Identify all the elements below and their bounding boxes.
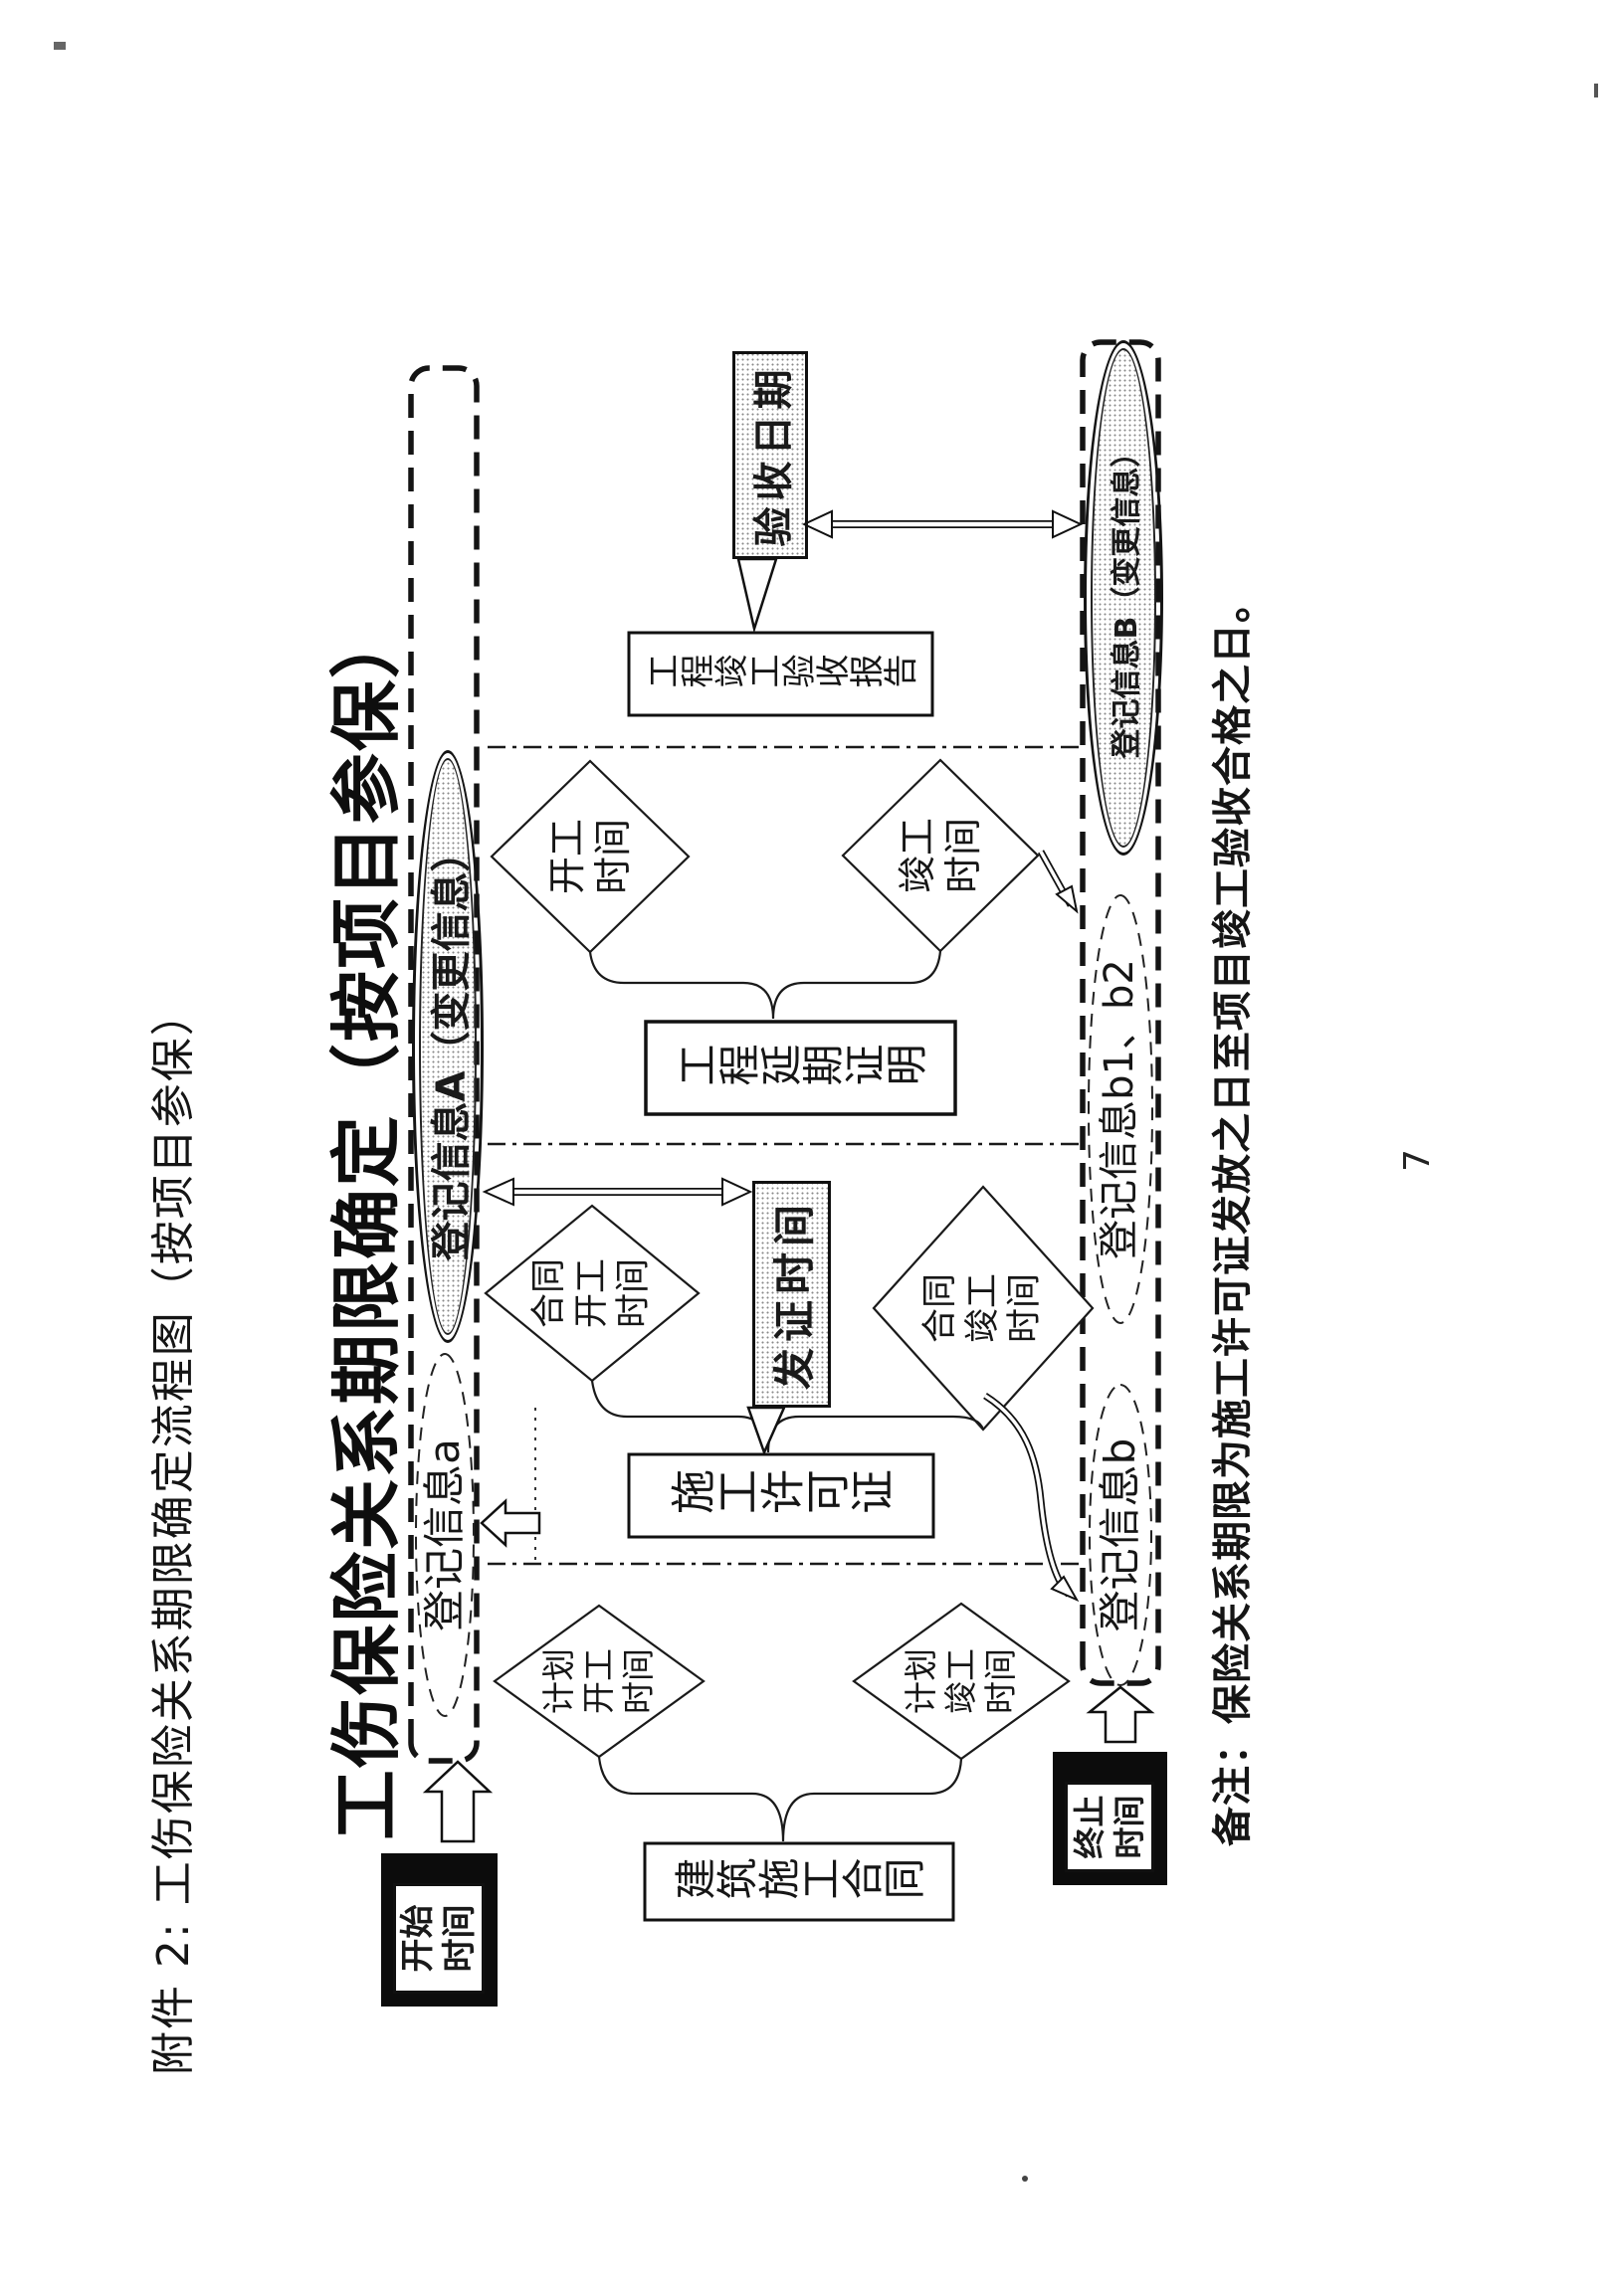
info-b-label: 登记信息b bbox=[1091, 1386, 1150, 1684]
brace-actual bbox=[590, 951, 940, 1019]
info-B-ellipse: 登记信息B（变更信息） bbox=[1084, 340, 1163, 856]
page-number: 7 bbox=[1397, 1149, 1438, 1172]
page-title: 工伤保险关系期限确定（按项目参保） bbox=[310, 606, 412, 1840]
start-time-arrow bbox=[426, 1762, 490, 1841]
issue-date-callout: 发证时间 bbox=[752, 1181, 831, 1408]
contract-completion-label: 合同 竣工 时间 bbox=[874, 1187, 1093, 1430]
planned-completion-label: 计划 竣工 时间 bbox=[854, 1604, 1069, 1759]
scan-artifact bbox=[1022, 2176, 1028, 2182]
delay-certificate-label: 工程延期证明 bbox=[646, 1022, 955, 1114]
issue-date-callout-tail bbox=[748, 1408, 784, 1452]
acceptance-infoB-arrow-head-top bbox=[804, 511, 832, 537]
flowchart-canvas: 附件 2: 工伤保险关系期限确定流程图（按项目参保） 工伤保险关系期限确定（按项… bbox=[0, 0, 1616, 2296]
actual-completion-label: 竣工 时间 bbox=[843, 760, 1038, 951]
scan-artifact bbox=[54, 42, 66, 50]
planned-start-label: 计划 开工 时间 bbox=[495, 1607, 704, 1756]
acceptance-report-label: 工程竣工验收报告 bbox=[629, 633, 932, 715]
info-a-issue-arrow-head-top bbox=[485, 1179, 513, 1205]
scan-artifact bbox=[1594, 84, 1598, 97]
footnote: 备注：保险关系期限为施工许可证发放之日至项目竣工验收合格之日。 bbox=[1200, 582, 1258, 1846]
end-time-arrow bbox=[1090, 1687, 1151, 1742]
info-A-ellipse: 登记信息A（变更信息） bbox=[412, 750, 484, 1343]
info-B-label: 登记信息B（变更信息） bbox=[1102, 438, 1145, 759]
start-time-label: 开始 时间 bbox=[393, 1883, 485, 1994]
construction-contract-label: 建筑施工合同 bbox=[645, 1843, 953, 1920]
info-A-label: 登记信息A（变更信息） bbox=[419, 833, 477, 1261]
brace-planned bbox=[599, 1757, 961, 1841]
flowchart-linework bbox=[0, 0, 1616, 2296]
info-a-label: 登记信息a bbox=[415, 1366, 475, 1704]
actual-start-label: 开工 时间 bbox=[492, 761, 689, 952]
info-b1b2-label: 登记信息b1、b2 bbox=[1087, 895, 1152, 1323]
scanned-page: 附件 2: 工伤保险关系期限确定流程图（按项目参保） 工伤保险关系期限确定（按项… bbox=[0, 0, 1616, 2296]
acceptance-date-callout: 验收日期 bbox=[732, 351, 808, 559]
contract-start-label: 合同 开工 时间 bbox=[486, 1206, 699, 1381]
start-time-terminal: 开始 时间 bbox=[381, 1853, 498, 2007]
info-a-issue-arrow-head-bottom bbox=[722, 1179, 750, 1205]
attachment-header: 附件 2: 工伤保险关系期限确定流程图（按项目参保） bbox=[137, 990, 201, 2075]
end-time-terminal: 终止 时间 bbox=[1053, 1752, 1167, 1885]
acceptance-date-callout-tail bbox=[738, 559, 776, 629]
permit-to-info-a-arrow bbox=[482, 1501, 539, 1545]
construction-permit-label: 施工许可证 bbox=[629, 1454, 933, 1537]
acceptance-infoB-arrow-head-bottom bbox=[1053, 511, 1081, 537]
end-time-label: 终止 时间 bbox=[1065, 1782, 1154, 1872]
